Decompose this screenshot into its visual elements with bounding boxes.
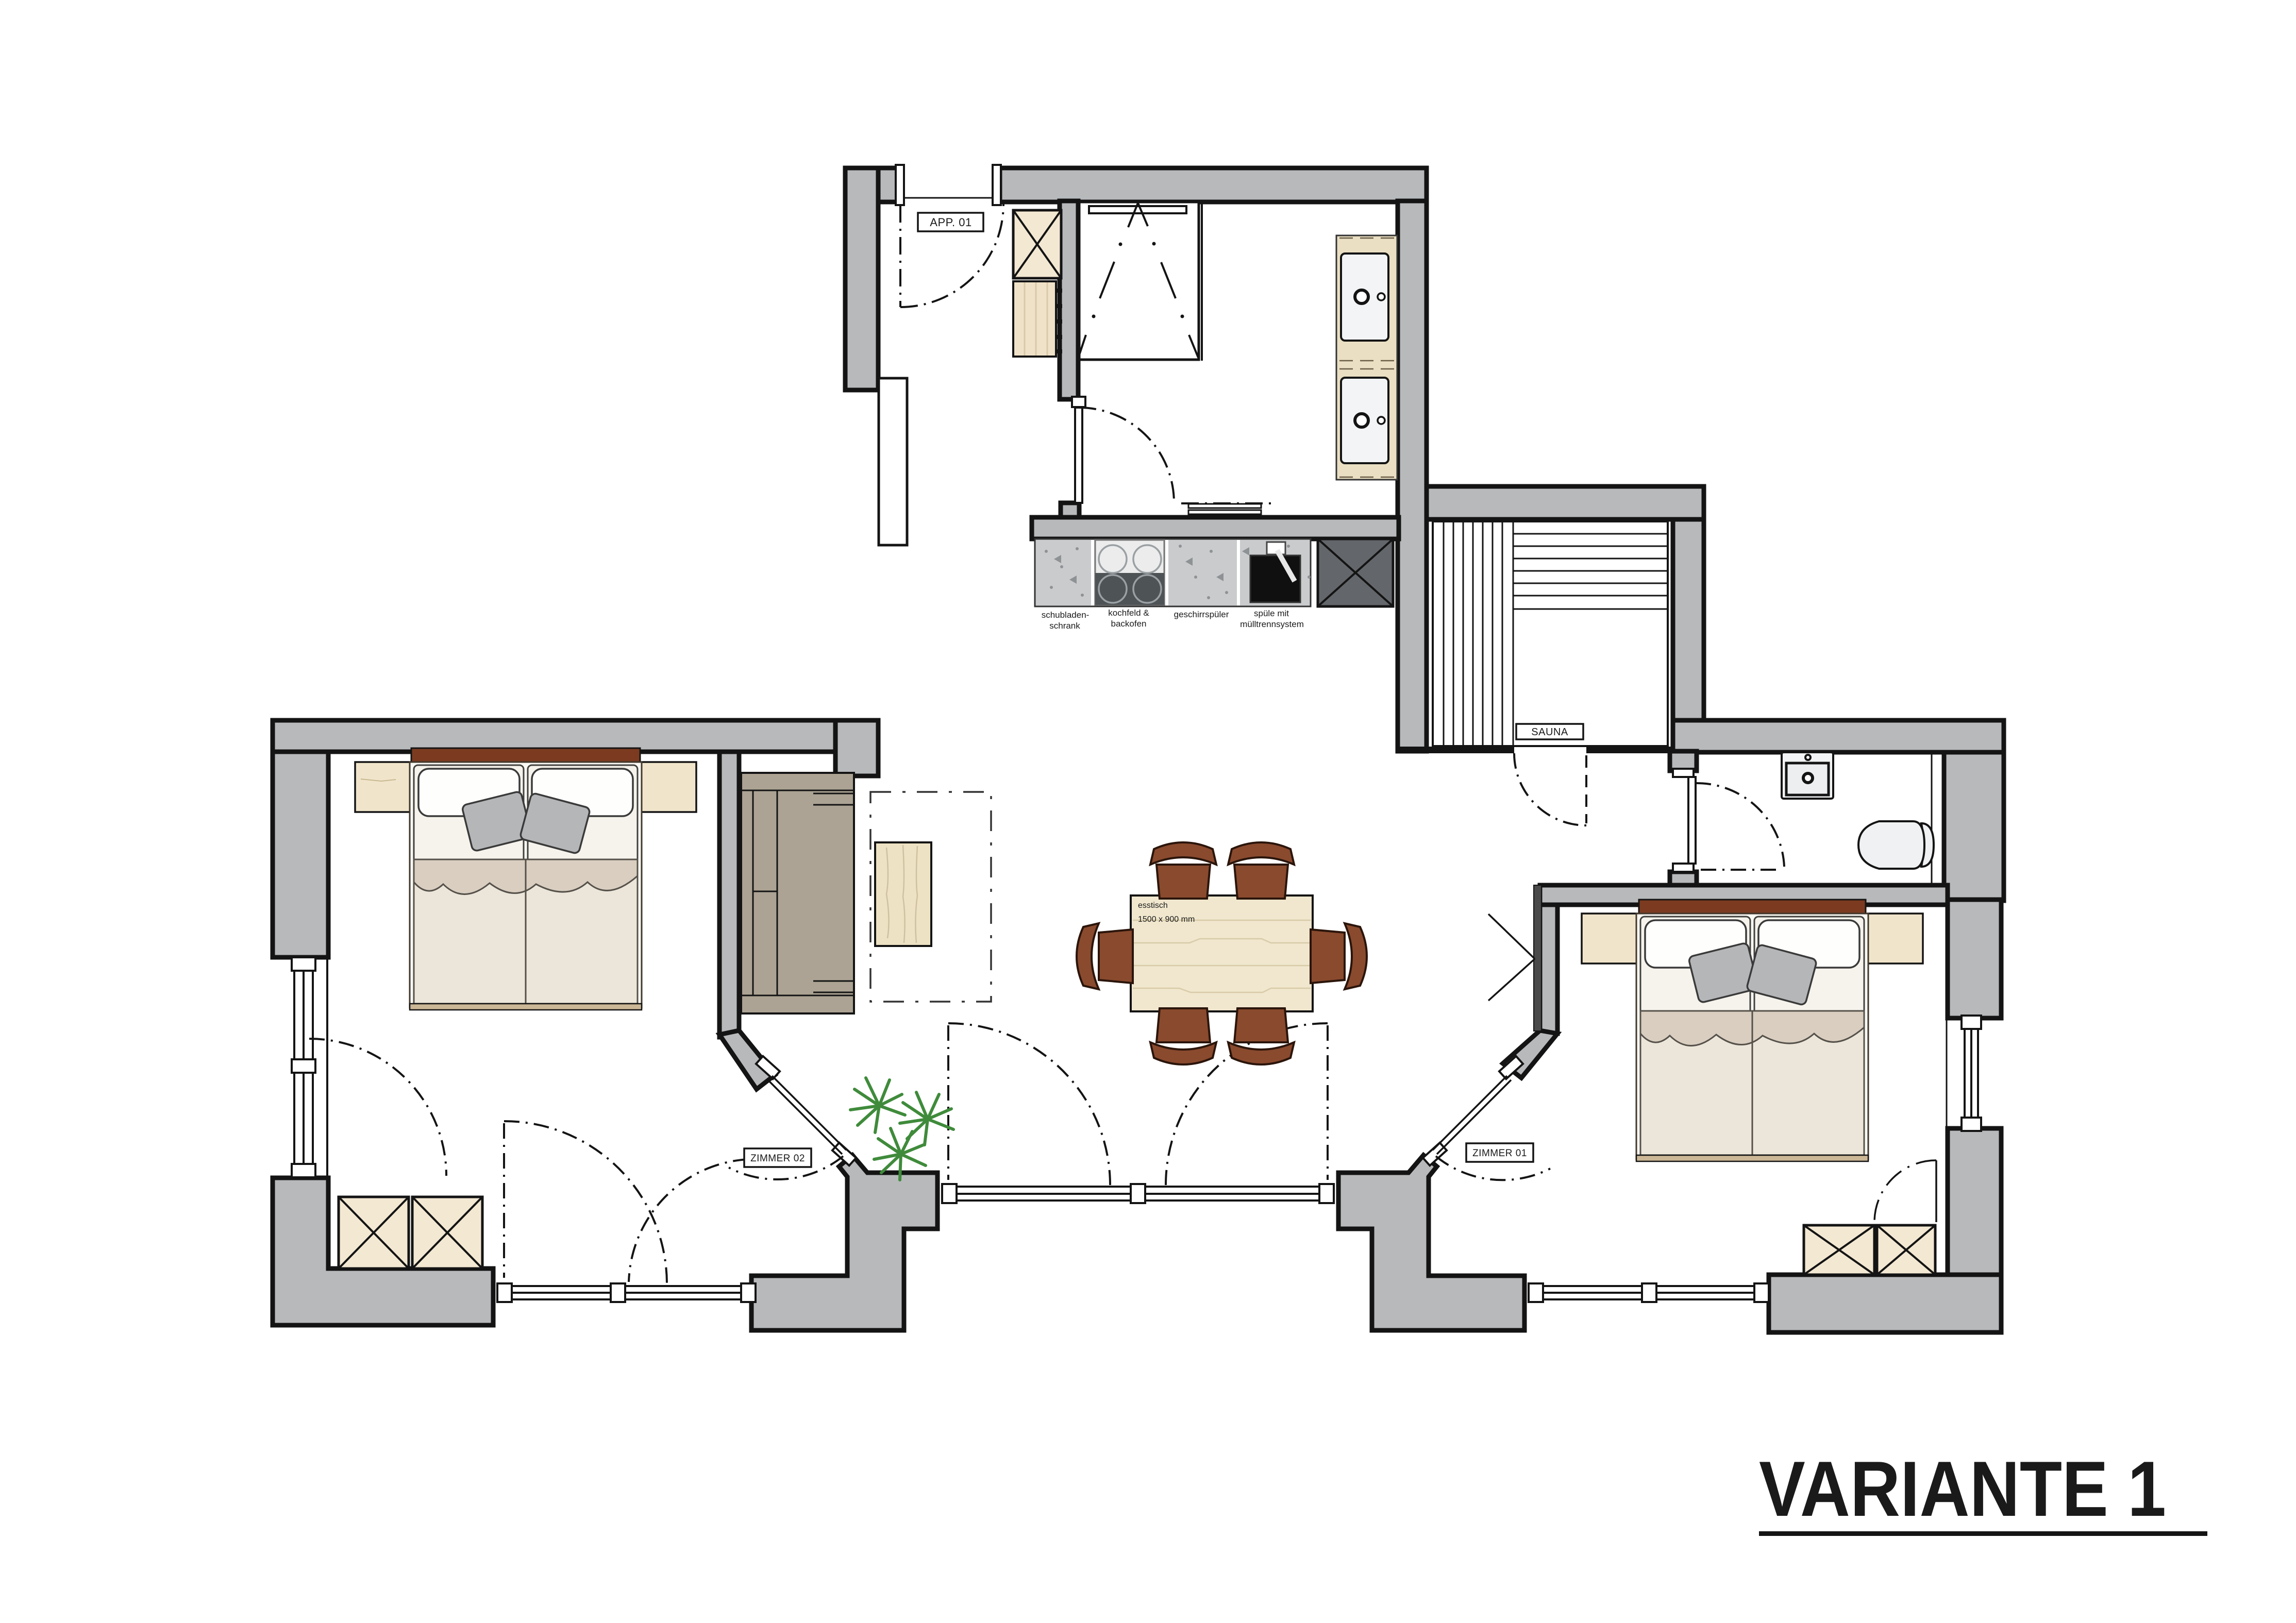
svg-text:backofen: backofen <box>1111 619 1147 629</box>
svg-text:APP. 01: APP. 01 <box>930 216 971 229</box>
svg-text:ZIMMER 02: ZIMMER 02 <box>750 1153 805 1164</box>
svg-text:1500 x 900 mm: 1500 x 900 mm <box>1138 915 1195 924</box>
svg-text:esstisch: esstisch <box>1138 901 1168 910</box>
svg-text:VARIANTE 1: VARIANTE 1 <box>1759 1445 2166 1533</box>
svg-text:schubladen-: schubladen- <box>1042 610 1090 620</box>
svg-text:mülltrennsystem: mülltrennsystem <box>1240 619 1304 629</box>
svg-text:SAUNA: SAUNA <box>1531 726 1568 738</box>
svg-text:ZIMMER 01: ZIMMER 01 <box>1472 1148 1527 1159</box>
svg-text:schrank: schrank <box>1049 621 1080 631</box>
svg-text:spüle mit: spüle mit <box>1254 608 1289 618</box>
svg-text:kochfeld &: kochfeld & <box>1108 608 1149 618</box>
svg-text:geschirrspüler: geschirrspüler <box>1174 610 1229 619</box>
